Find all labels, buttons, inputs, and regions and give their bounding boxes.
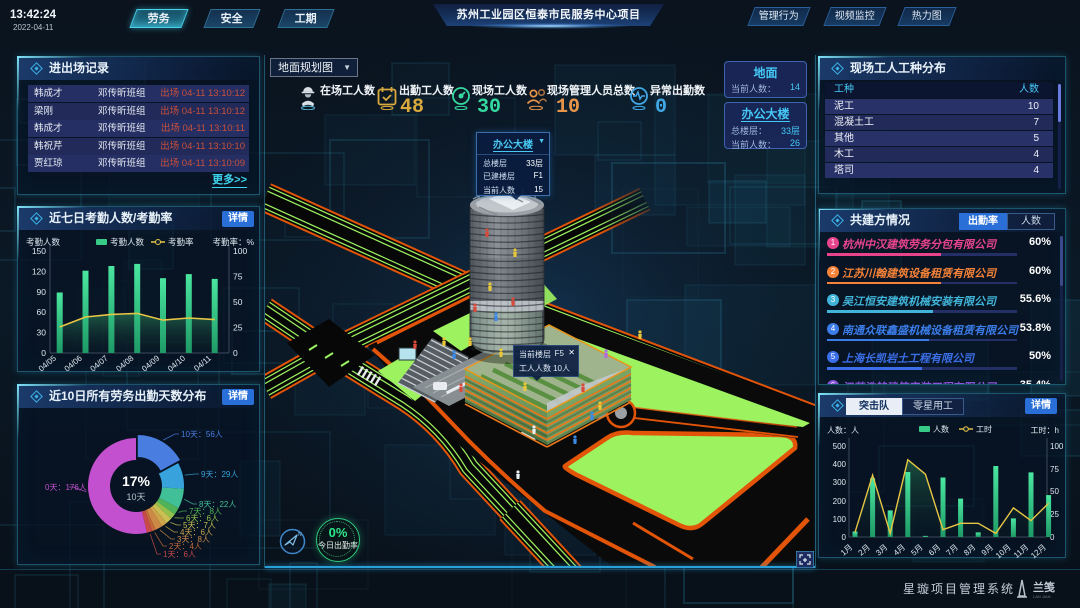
- svg-text:60: 60: [37, 307, 47, 317]
- svg-text:75: 75: [1050, 465, 1059, 474]
- svg-text:50: 50: [1050, 487, 1059, 496]
- svg-text:120: 120: [32, 266, 46, 276]
- svg-text:1天：6人: 1天：6人: [163, 550, 196, 559]
- svg-text:5月: 5月: [909, 543, 924, 558]
- svg-text:0: 0: [41, 348, 46, 358]
- svg-text:75: 75: [233, 272, 243, 282]
- svg-text:100: 100: [233, 246, 247, 256]
- svg-text:11月: 11月: [1012, 543, 1030, 559]
- svg-text:LAN JIAN: LAN JIAN: [1033, 594, 1051, 599]
- svg-text:考勤率：%: 考勤率：%: [212, 237, 254, 247]
- svg-text:25: 25: [1050, 510, 1059, 519]
- svg-text:04/09: 04/09: [140, 353, 162, 373]
- svg-text:9月: 9月: [980, 543, 995, 558]
- svg-text:04/08: 04/08: [114, 353, 136, 373]
- svg-text:10天：56人: 10天：56人: [181, 430, 223, 439]
- svg-text:7月: 7月: [945, 543, 960, 558]
- svg-text:04/06: 04/06: [63, 353, 85, 373]
- svg-text:兰笺: 兰笺: [1033, 580, 1055, 594]
- svg-text:工时：h: 工时：h: [1031, 425, 1059, 435]
- svg-text:400: 400: [833, 460, 847, 469]
- svg-text:04/10: 04/10: [166, 353, 188, 373]
- svg-text:考勤率: 考勤率: [168, 237, 194, 247]
- svg-text:25: 25: [233, 323, 243, 333]
- svg-text:0天：176人: 0天：176人: [45, 483, 87, 492]
- svg-text:0: 0: [233, 348, 238, 358]
- svg-text:150: 150: [32, 246, 46, 256]
- svg-text:1月: 1月: [839, 543, 854, 558]
- svg-text:04/07: 04/07: [89, 353, 111, 373]
- svg-text:工时: 工时: [976, 424, 992, 434]
- svg-text:200: 200: [833, 497, 847, 506]
- svg-text:30: 30: [37, 328, 47, 338]
- svg-text:8月: 8月: [962, 543, 977, 558]
- svg-text:考勤人数: 考勤人数: [110, 237, 145, 247]
- svg-text:9天：29人: 9天：29人: [201, 470, 238, 479]
- svg-text:04/05: 04/05: [37, 353, 59, 373]
- svg-text:50: 50: [233, 297, 243, 307]
- svg-text:500: 500: [833, 442, 847, 451]
- svg-text:4月: 4月: [892, 543, 907, 558]
- svg-text:6月: 6月: [927, 543, 942, 558]
- svg-text:3月: 3月: [874, 543, 889, 558]
- svg-text:人数：人: 人数：人: [827, 425, 859, 435]
- svg-text:10天: 10天: [126, 492, 145, 502]
- svg-text:90: 90: [37, 287, 47, 297]
- svg-text:100: 100: [1050, 442, 1064, 451]
- svg-text:2月: 2月: [857, 543, 872, 558]
- svg-text:300: 300: [833, 478, 847, 487]
- svg-text:10月: 10月: [994, 543, 1013, 559]
- svg-text:04/11: 04/11: [192, 353, 213, 373]
- svg-text:100: 100: [833, 515, 847, 524]
- svg-text:人数: 人数: [933, 424, 949, 434]
- svg-text:17%: 17%: [122, 473, 151, 489]
- svg-text:0: 0: [842, 533, 847, 542]
- svg-text:N: N: [298, 532, 302, 538]
- svg-text:考勤人数: 考勤人数: [26, 237, 61, 247]
- svg-text:12月: 12月: [1029, 543, 1048, 559]
